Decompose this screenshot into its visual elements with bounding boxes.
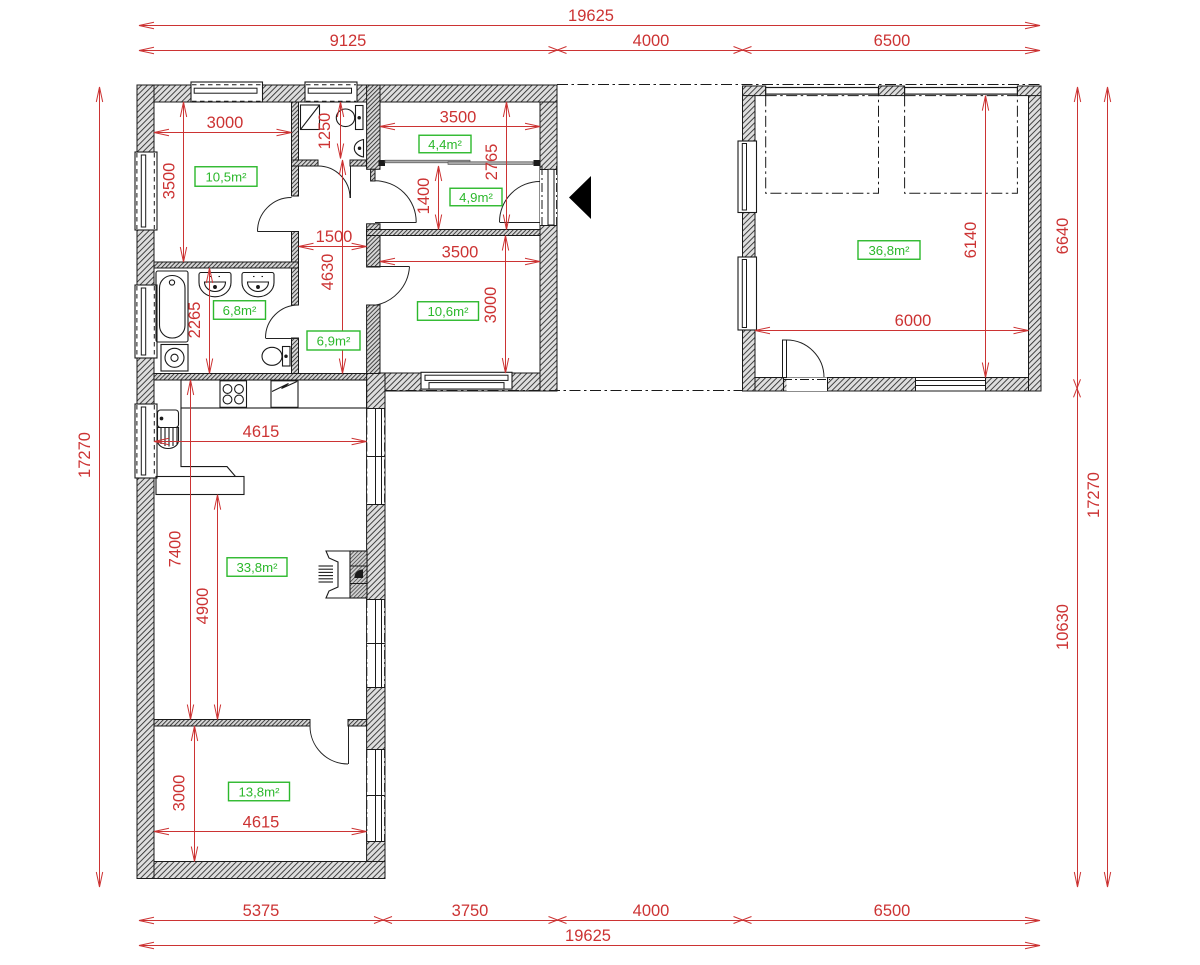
svg-text:6,8m²: 6,8m² <box>223 303 257 318</box>
svg-text:4900: 4900 <box>194 588 212 625</box>
svg-text:5375: 5375 <box>243 902 280 920</box>
svg-text:1250: 1250 <box>316 113 334 150</box>
svg-text:10,5m²: 10,5m² <box>205 170 247 185</box>
svg-text:13,8m²: 13,8m² <box>238 785 280 800</box>
svg-text:4000: 4000 <box>633 32 670 50</box>
svg-text:2265: 2265 <box>186 302 204 339</box>
svg-text:3500: 3500 <box>161 163 179 200</box>
svg-text:3000: 3000 <box>482 287 500 324</box>
svg-text:6640: 6640 <box>1054 218 1072 255</box>
svg-text:33,8m²: 33,8m² <box>236 560 278 575</box>
svg-text:10630: 10630 <box>1054 604 1072 650</box>
svg-text:3500: 3500 <box>442 244 479 262</box>
svg-text:10,6m²: 10,6m² <box>427 304 469 319</box>
svg-text:2765: 2765 <box>483 144 501 181</box>
svg-text:19625: 19625 <box>568 7 614 25</box>
svg-text:6500: 6500 <box>874 32 911 50</box>
svg-text:3000: 3000 <box>207 114 244 132</box>
svg-text:17270: 17270 <box>76 432 94 478</box>
svg-text:3500: 3500 <box>440 109 477 127</box>
svg-text:4000: 4000 <box>633 902 670 920</box>
svg-text:6500: 6500 <box>874 902 911 920</box>
svg-text:3750: 3750 <box>452 902 489 920</box>
svg-text:3000: 3000 <box>171 775 189 812</box>
svg-text:6,9m²: 6,9m² <box>317 334 351 349</box>
svg-text:4,9m²: 4,9m² <box>459 190 493 205</box>
svg-text:9125: 9125 <box>330 32 367 50</box>
svg-text:7400: 7400 <box>167 531 185 568</box>
svg-text:4615: 4615 <box>243 814 280 832</box>
svg-text:4615: 4615 <box>243 423 280 441</box>
svg-text:4,4m²: 4,4m² <box>428 137 462 152</box>
svg-text:1500: 1500 <box>316 228 353 246</box>
svg-text:19625: 19625 <box>565 927 611 945</box>
svg-text:4630: 4630 <box>319 254 337 291</box>
svg-text:36,8m²: 36,8m² <box>868 243 910 258</box>
svg-text:6140: 6140 <box>962 222 980 259</box>
svg-text:1400: 1400 <box>415 178 433 215</box>
svg-text:6000: 6000 <box>895 312 932 330</box>
svg-text:17270: 17270 <box>1085 472 1103 518</box>
